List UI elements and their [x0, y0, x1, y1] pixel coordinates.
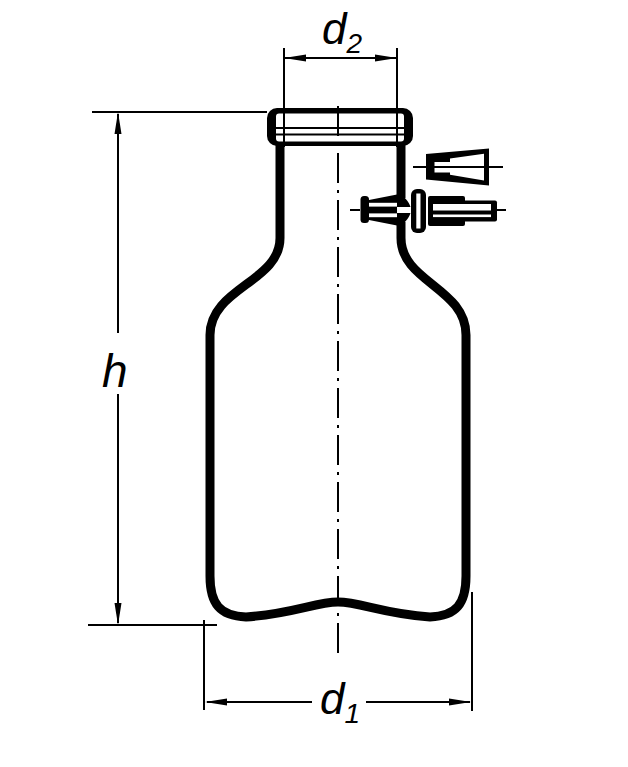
d1-label: d1	[320, 674, 360, 729]
h-arrow-up-icon	[115, 112, 122, 134]
d2-label: d2	[322, 4, 362, 59]
dimension-h: h	[88, 112, 267, 625]
h-label: h	[102, 345, 128, 397]
hose-connector	[428, 196, 497, 226]
tubulature-bore-lower	[369, 213, 397, 217]
connector-bore-line	[433, 215, 491, 218]
washer-slit	[416, 194, 420, 229]
bottle-technical-drawing: d2 h d1	[0, 0, 628, 767]
d2-arrow-left-icon	[284, 55, 306, 62]
tubulature-flange	[361, 196, 370, 223]
d2-arrow-right-icon	[375, 55, 397, 62]
connector-bore	[433, 204, 491, 211]
sealing-washer	[411, 189, 426, 233]
tubulature-body	[369, 195, 397, 226]
bottle-rim	[267, 108, 413, 146]
drawing-canvas: d2 h d1	[0, 0, 628, 767]
d1-arrow-left-icon	[205, 699, 227, 706]
d1-arrow-right-icon	[449, 699, 471, 706]
h-arrow-down-icon	[115, 603, 122, 625]
connector-head	[428, 196, 465, 226]
screw-cap	[413, 149, 503, 186]
connector-barrel	[463, 201, 497, 222]
tubulature-bore-upper	[369, 203, 397, 207]
